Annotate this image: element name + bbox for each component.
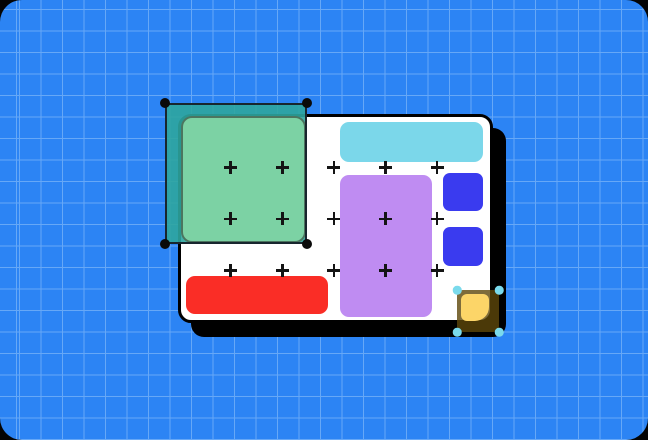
yellow-selection-handle-top-left[interactable] [453, 286, 462, 295]
plus-marker [205, 245, 257, 296]
plus-icon [431, 264, 444, 277]
yellow-selection-handle-bottom-left[interactable] [453, 328, 462, 337]
plus-marker [360, 245, 412, 296]
plus-marker [308, 142, 360, 193]
plus-marker [360, 142, 412, 193]
selection-handle-bottom-left[interactable] [160, 239, 170, 249]
plus-marker [308, 245, 360, 296]
selection-bounds-border [165, 103, 307, 244]
plus-icon [327, 264, 340, 277]
plus-icon [431, 161, 444, 174]
selection-handle-top-right[interactable] [302, 98, 312, 108]
plus-marker [411, 193, 463, 244]
plus-marker [411, 142, 463, 193]
selection-handle-bottom-right[interactable] [302, 239, 312, 249]
plus-icon [379, 264, 392, 277]
plus-icon [327, 212, 340, 225]
yellow-selection-handle-top-right[interactable] [495, 286, 504, 295]
yellow-square-shape[interactable] [461, 294, 489, 321]
plus-marker [257, 245, 309, 296]
plus-icon [431, 212, 444, 225]
plus-marker [308, 193, 360, 244]
selection-handle-top-left[interactable] [160, 98, 170, 108]
canvas-background-grid [0, 0, 648, 440]
yellow-selection-handle-bottom-right[interactable] [495, 328, 504, 337]
plus-icon [379, 212, 392, 225]
plus-icon [276, 264, 289, 277]
plus-icon [327, 161, 340, 174]
plus-icon [224, 264, 237, 277]
plus-marker [360, 193, 412, 244]
plus-icon [379, 161, 392, 174]
